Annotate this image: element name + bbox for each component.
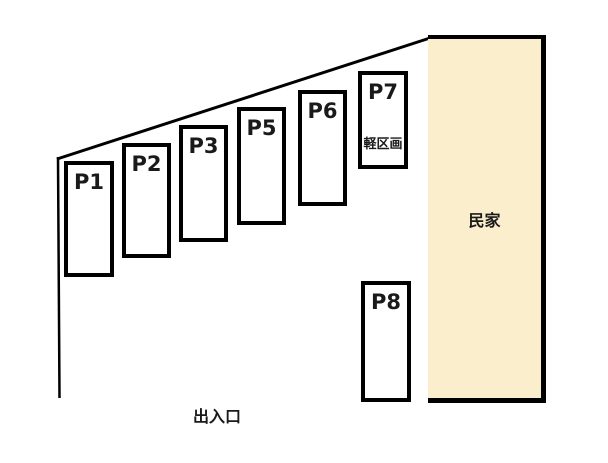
spot-label-p1: P1: [68, 172, 110, 193]
spot-label-p3: P3: [183, 136, 224, 157]
parking-spot-p6: P6: [298, 90, 347, 206]
spot-note-kei-kukaku: 軽区画: [362, 138, 404, 151]
spot-label-p8: P8: [365, 292, 407, 313]
boundary-line-left: [58, 157, 60, 398]
spot-label-p5: P5: [241, 118, 282, 139]
parking-spot-p7-kei-section: P7 軽区画: [358, 71, 408, 169]
private-house-block: 民家: [428, 35, 546, 403]
parking-spot-p3: P3: [179, 125, 228, 242]
parking-lot-diagram: P1 P2 P3 P5 P6 P7 軽区画 P8 民家 出入口: [0, 0, 608, 463]
parking-spot-p5: P5: [237, 107, 286, 225]
entrance-exit-label: 出入口: [193, 403, 241, 427]
private-house-label: 民家: [468, 207, 500, 231]
spot-label-p2: P2: [126, 154, 167, 175]
parking-spot-p8: P8: [361, 281, 411, 402]
parking-spot-p2: P2: [122, 143, 171, 258]
spot-label-p6: P6: [302, 101, 343, 122]
parking-spot-p1: P1: [64, 161, 114, 277]
spot-label-p7: P7: [362, 82, 404, 103]
